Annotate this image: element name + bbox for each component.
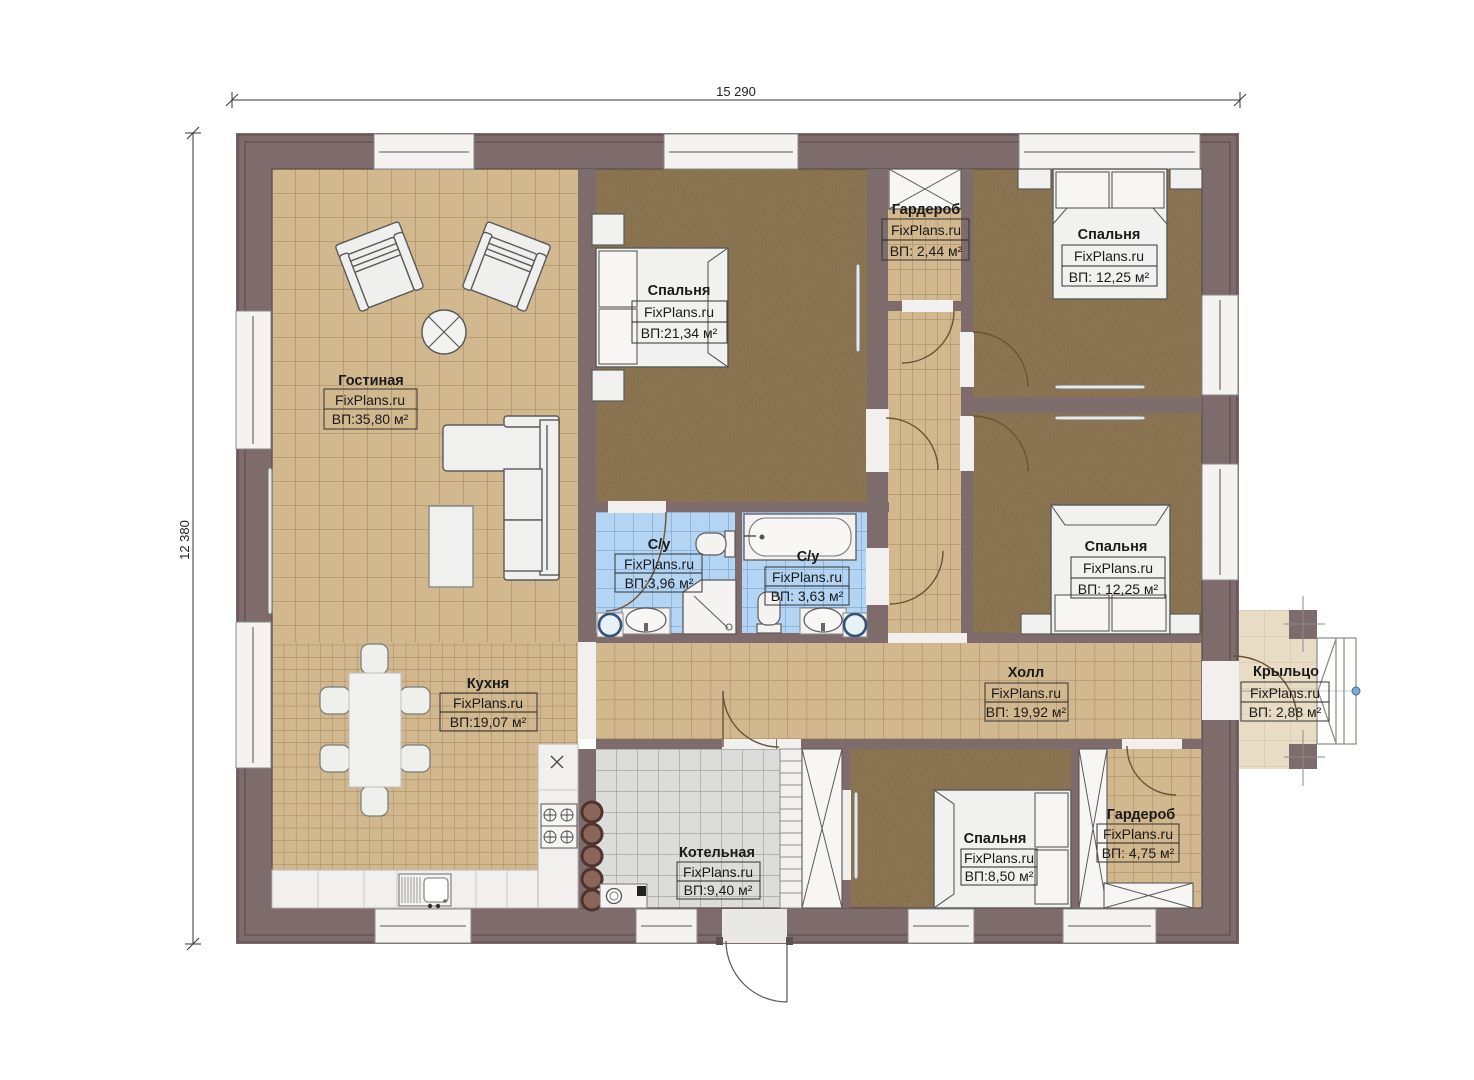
svg-text:FixPlans.ru: FixPlans.ru	[1103, 826, 1173, 842]
svg-text:12 380: 12 380	[177, 520, 192, 560]
svg-text:FixPlans.ru: FixPlans.ru	[1083, 560, 1153, 576]
svg-text:FixPlans.ru: FixPlans.ru	[1250, 685, 1320, 701]
svg-text:FixPlans.ru: FixPlans.ru	[891, 222, 961, 238]
svg-text:Гостиная: Гостиная	[338, 373, 404, 389]
svg-text:Котельная: Котельная	[679, 845, 755, 861]
svg-text:15 290: 15 290	[716, 84, 756, 99]
svg-text:FixPlans.ru: FixPlans.ru	[644, 304, 714, 320]
svg-text:Крыльцо: Крыльцо	[1253, 664, 1319, 680]
svg-text:Гардероб: Гардероб	[1107, 807, 1176, 823]
svg-text:ВП: 3,63 м²: ВП: 3,63 м²	[771, 588, 844, 604]
svg-text:Спальня: Спальня	[1085, 539, 1148, 555]
svg-text:Холл: Холл	[1008, 665, 1044, 681]
svg-text:FixPlans.ru: FixPlans.ru	[453, 695, 523, 711]
svg-text:FixPlans.ru: FixPlans.ru	[1074, 248, 1144, 264]
svg-text:Гардероб: Гардероб	[892, 202, 961, 218]
svg-text:ВП: 12,25 м²: ВП: 12,25 м²	[1078, 581, 1159, 597]
svg-text:ВП: 2,88 м²: ВП: 2,88 м²	[1249, 704, 1322, 720]
svg-text:Спальня: Спальня	[1078, 227, 1141, 243]
svg-text:Спальня: Спальня	[964, 831, 1027, 847]
svg-text:FixPlans.ru: FixPlans.ru	[991, 685, 1061, 701]
svg-text:ВП: 4,75 м²: ВП: 4,75 м²	[1102, 845, 1175, 861]
svg-text:С/у: С/у	[648, 537, 671, 553]
svg-text:FixPlans.ru: FixPlans.ru	[335, 392, 405, 408]
svg-text:ВП: 19,92 м²: ВП: 19,92 м²	[986, 704, 1067, 720]
svg-text:ВП: 12,25 м²: ВП: 12,25 м²	[1069, 269, 1150, 285]
svg-text:Спальня: Спальня	[648, 283, 711, 299]
svg-text:FixPlans.ru: FixPlans.ru	[772, 569, 842, 585]
svg-text:ВП:3,96 м²: ВП:3,96 м²	[625, 575, 694, 591]
svg-text:FixPlans.ru: FixPlans.ru	[683, 864, 753, 880]
svg-text:ВП: 2,44 м²: ВП: 2,44 м²	[890, 243, 963, 259]
svg-text:FixPlans.ru: FixPlans.ru	[964, 850, 1034, 866]
svg-text:ВП:35,80 м²: ВП:35,80 м²	[332, 411, 409, 427]
svg-text:ВП:21,34 м²: ВП:21,34 м²	[641, 325, 718, 341]
svg-text:ВП:19,07 м²: ВП:19,07 м²	[450, 714, 527, 730]
svg-text:ВП:9,40 м²: ВП:9,40 м²	[684, 882, 753, 898]
svg-text:Кухня: Кухня	[467, 676, 509, 692]
svg-text:FixPlans.ru: FixPlans.ru	[624, 556, 694, 572]
svg-text:ВП:8,50 м²: ВП:8,50 м²	[965, 868, 1034, 884]
svg-text:С/у: С/у	[797, 549, 820, 565]
